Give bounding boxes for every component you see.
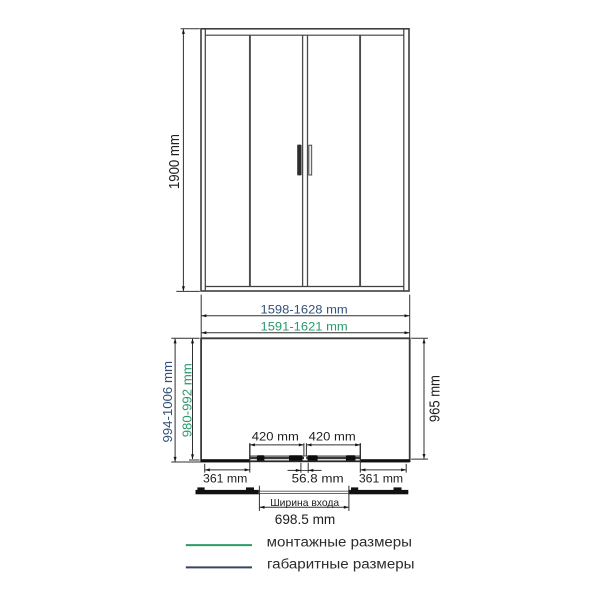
svg-text:420 mm: 420 mm: [252, 429, 299, 443]
svg-text:габаритные размеры: габаритные размеры: [267, 557, 415, 573]
svg-text:1900 mm: 1900 mm: [167, 134, 183, 189]
svg-text:361 mm: 361 mm: [359, 472, 403, 486]
svg-text:994-1006 mm: 994-1006 mm: [160, 361, 175, 443]
svg-text:56.8 mm: 56.8 mm: [292, 472, 344, 486]
svg-text:965 mm: 965 mm: [427, 375, 443, 422]
svg-text:Ширина входа: Ширина входа: [270, 498, 339, 509]
svg-text:980-992 mm: 980-992 mm: [179, 363, 194, 437]
svg-text:1591-1621 mm: 1591-1621 mm: [261, 319, 348, 333]
svg-text:698.5 mm: 698.5 mm: [275, 511, 336, 527]
svg-text:420 mm: 420 mm: [309, 429, 356, 443]
svg-text:1598-1628 mm: 1598-1628 mm: [261, 303, 348, 317]
svg-text:361 mm: 361 mm: [203, 472, 247, 486]
svg-text:монтажные размеры: монтажные размеры: [267, 534, 412, 550]
